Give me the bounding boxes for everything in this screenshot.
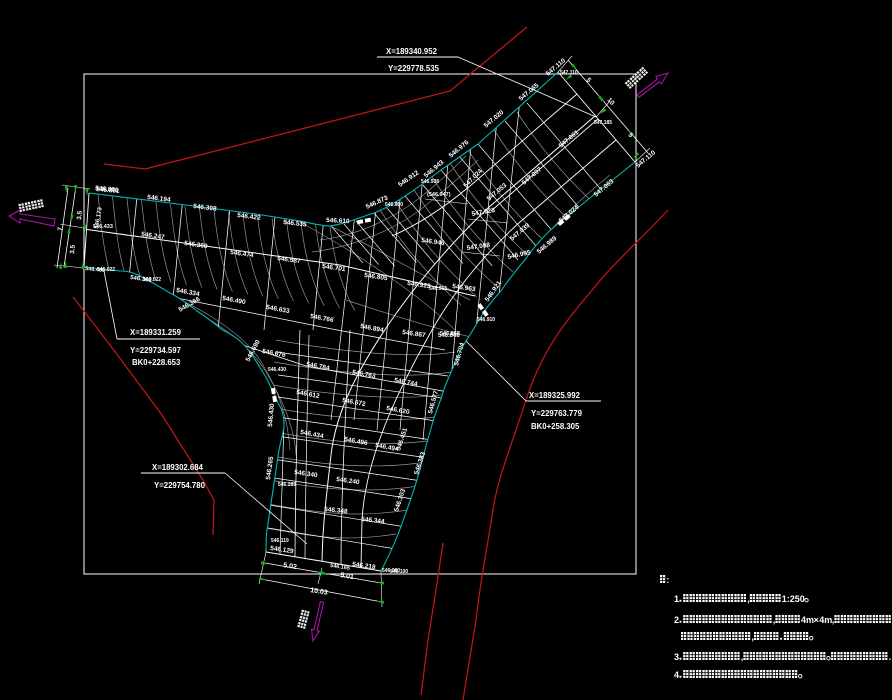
svg-text::: : [666,575,669,585]
svg-text:BK0+258.305: BK0+258.305 [531,422,580,431]
svg-text:546.868: 546.868 [440,331,460,337]
svg-text:4m: 4m [801,615,814,625]
svg-text:546.610: 546.610 [326,217,350,225]
svg-text:Y=229763.779: Y=229763.779 [531,409,583,418]
svg-text:546.022: 546.022 [143,277,161,283]
svg-text:,: , [773,615,776,625]
svg-text:1: 1 [674,594,679,604]
svg-text:546.119: 546.119 [271,538,289,544]
svg-text:546.289: 546.289 [278,482,296,488]
svg-text:546.430: 546.430 [268,367,286,373]
svg-text:547.185: 547.185 [594,120,612,126]
svg-text:(546.947): (546.947) [427,192,451,198]
svg-text:3.5: 3.5 [76,210,84,220]
svg-text:X=189302.684: X=189302.684 [152,463,204,472]
svg-text:546.022: 546.022 [97,267,115,273]
svg-text:546.850: 546.850 [385,202,403,208]
svg-text:4: 4 [674,670,679,680]
svg-text:1:250: 1:250 [782,594,805,604]
svg-text:X=189340.952: X=189340.952 [386,47,438,56]
svg-text:×: × [814,615,819,625]
svg-text:546.910: 546.910 [477,317,495,323]
svg-text:,: , [747,594,750,604]
svg-text:546.938: 546.938 [421,179,439,185]
svg-text:X=189325.992: X=189325.992 [529,391,581,400]
svg-text:Y=229734.597: Y=229734.597 [130,346,181,355]
svg-text:,: , [751,632,754,642]
svg-text:3: 3 [674,652,679,662]
svg-text:4m: 4m [819,615,832,625]
svg-text:3.5: 3.5 [69,244,77,254]
svg-text:Y=229754.780: Y=229754.780 [154,481,206,490]
svg-text:547.110: 547.110 [560,70,578,76]
svg-text:,: , [832,615,835,625]
svg-text:546.915: 546.915 [429,286,447,292]
svg-text:Y=229778.535: Y=229778.535 [388,64,440,73]
svg-text:BK0+228.653: BK0+228.653 [132,358,181,367]
svg-text:,: , [741,652,744,662]
svg-text:546.100: 546.100 [390,569,408,575]
svg-text:.: . [889,652,892,662]
svg-text:X=189331.259: X=189331.259 [130,328,182,337]
svg-text:2: 2 [674,615,679,625]
